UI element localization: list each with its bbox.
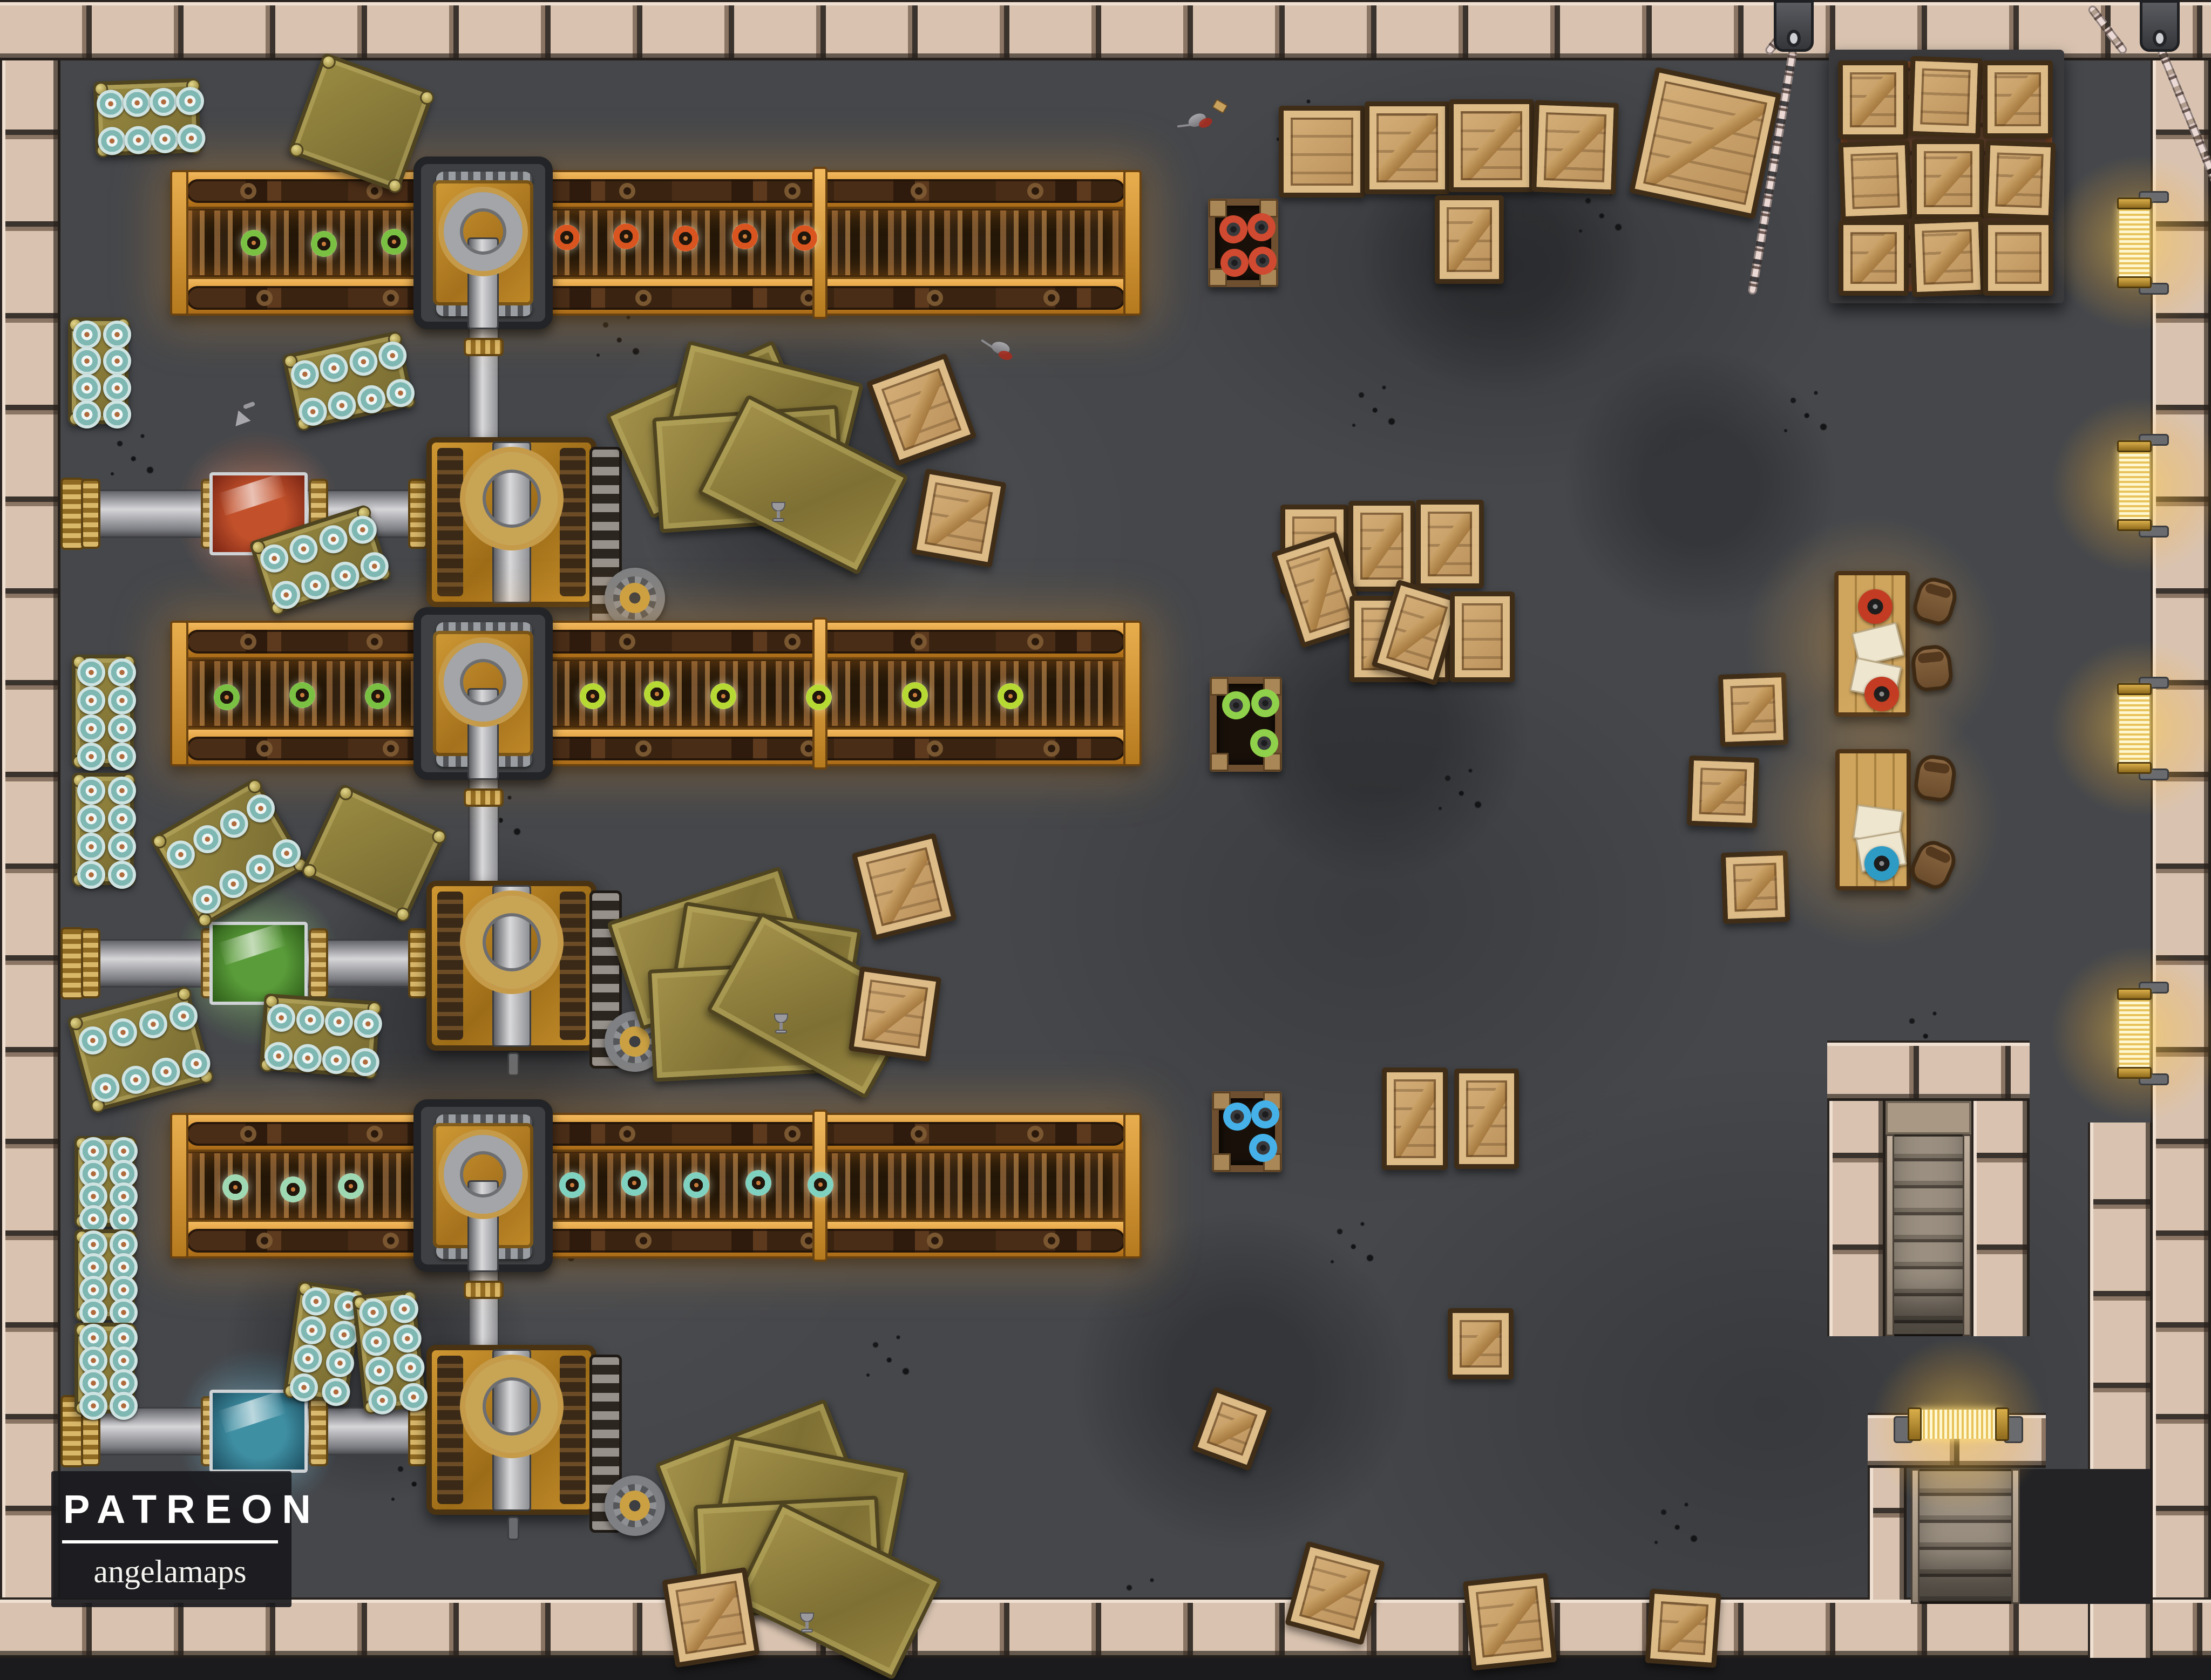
belt-potion-token[interactable] — [613, 223, 639, 249]
crate-potion-token[interactable] — [1251, 1100, 1279, 1128]
anchor-hole-icon — [1787, 30, 1801, 47]
belt-potion-token[interactable] — [214, 684, 240, 710]
belt-potion-token[interactable] — [683, 1172, 709, 1198]
stairs-landing — [1886, 1101, 1971, 1134]
tray-knob-icon — [336, 784, 355, 802]
tray-knob-icon — [418, 89, 436, 106]
conveyor-end-cap — [1123, 1113, 1142, 1259]
stair-stringer-icon — [2011, 1469, 2020, 1604]
floor-speckle — [97, 421, 173, 496]
crate[interactable] — [1448, 1308, 1514, 1379]
crate[interactable] — [1449, 99, 1534, 192]
potion-bottle-token[interactable] — [73, 400, 101, 428]
lamp-cap-icon — [2117, 519, 2152, 531]
potion-bottle-token[interactable] — [103, 400, 131, 428]
gear-icon — [1043, 290, 1060, 306]
goblet-cup-icon — [771, 502, 785, 512]
chair-back-icon — [1924, 582, 1952, 599]
open-potion-crate[interactable] — [1212, 1091, 1282, 1172]
potion-bottle-token[interactable] — [136, 1007, 171, 1042]
belt-potion-token[interactable] — [710, 683, 736, 709]
belt-potion-token[interactable] — [791, 225, 817, 251]
belt-potion-token[interactable] — [222, 1174, 248, 1200]
lamp-cap-icon — [2117, 276, 2152, 288]
platform-crate[interactable] — [1983, 220, 2053, 296]
belt-potion-token[interactable] — [289, 682, 315, 708]
machine-ring — [444, 1135, 523, 1214]
potion-bottle-token[interactable] — [315, 521, 351, 557]
belt-potion-token[interactable] — [241, 230, 267, 256]
pipe-glass-section — [209, 1390, 308, 1473]
potion-bottle-token[interactable] — [73, 347, 101, 375]
potion-bottle-token[interactable] — [327, 558, 363, 594]
potion-tray[interactable] — [93, 78, 201, 157]
potion-bottle-token[interactable] — [376, 339, 410, 372]
platform-crate[interactable] — [1912, 139, 1984, 219]
potion-tray[interactable] — [282, 330, 415, 430]
room-void — [2020, 1469, 2151, 1604]
belt-potion-token[interactable] — [580, 683, 606, 709]
potion-bottle-token[interactable] — [325, 389, 359, 422]
chair[interactable] — [1912, 753, 1958, 803]
potion-bottle-token[interactable] — [73, 374, 101, 402]
goblet-cup-icon — [800, 1613, 814, 1622]
pipe-collar — [464, 338, 504, 356]
chain-anchor-icon — [1774, 0, 1814, 52]
crate-potion-token[interactable] — [1223, 1103, 1251, 1131]
potion-bottle-token[interactable] — [108, 658, 136, 686]
floor-speckle — [1771, 378, 1846, 453]
gear-icon — [911, 634, 927, 650]
platform-crate[interactable] — [1910, 217, 1986, 297]
goblet-cup-icon — [774, 1014, 788, 1023]
crate-brace-icon — [1210, 753, 1229, 771]
wall-bottom — [0, 1597, 2211, 1658]
open-potion-crate[interactable] — [1208, 199, 1278, 287]
belt-potion-token[interactable] — [621, 1170, 647, 1196]
gear-icon — [383, 740, 399, 757]
conveyor-end-cap — [1123, 621, 1142, 766]
conveyor-mech-strip — [186, 630, 1125, 654]
belt-potion-token[interactable] — [365, 683, 391, 709]
pump-hook-icon — [507, 1516, 519, 1540]
conveyor-mech-strip — [186, 286, 1125, 310]
gear-icon — [367, 634, 383, 650]
broken-flask-icon — [229, 399, 263, 429]
crate[interactable] — [1718, 672, 1789, 747]
rat-tail-icon — [981, 339, 994, 349]
gear-icon — [635, 290, 652, 306]
wall-lamp — [2119, 447, 2149, 525]
chair[interactable] — [1906, 836, 1961, 894]
battlemap-stage: PATREONangelamaps — [0, 0, 2211, 1658]
conveyor-rail-top — [170, 1113, 1142, 1152]
gear-icon — [784, 183, 801, 199]
crate-potion-token[interactable] — [1250, 729, 1278, 757]
potion-bottle-token[interactable] — [108, 715, 136, 743]
gear-icon — [619, 634, 635, 650]
pump-gear-hub-icon — [620, 1026, 650, 1057]
open-potion-crate[interactable] — [1210, 677, 1282, 772]
crate[interactable] — [1365, 101, 1450, 194]
pump-rail-right — [560, 892, 586, 1040]
flask-shard — [230, 407, 250, 426]
platform-crate[interactable] — [1838, 60, 1908, 139]
belt-potion-token[interactable] — [745, 1170, 771, 1196]
belt-potion-token[interactable] — [554, 225, 580, 250]
floor-speckle — [1317, 1209, 1393, 1284]
belt-potion-token[interactable] — [902, 682, 928, 708]
potion-bottle-token[interactable] — [355, 383, 388, 416]
crate-potion-token[interactable] — [1249, 1134, 1277, 1162]
gear-icon — [383, 290, 399, 306]
lamp-cap-icon — [2117, 683, 2152, 695]
lamp-cap-icon — [1908, 1407, 1922, 1441]
tray-knob-icon — [288, 141, 306, 159]
wall-lamp — [2119, 995, 2149, 1072]
chain-anchor-icon — [2140, 0, 2180, 52]
potion-bottle-token[interactable] — [77, 743, 105, 771]
crate[interactable] — [1531, 100, 1619, 194]
potion-bottle-token[interactable] — [118, 1063, 153, 1097]
lamp-cap-icon — [2117, 198, 2152, 209]
potion-bottle-token[interactable] — [77, 777, 105, 805]
potion-bottle-token[interactable] — [317, 351, 351, 385]
glass-highlight-icon — [218, 923, 286, 965]
tray-knob-icon — [150, 832, 169, 851]
potion-bottle-token[interactable] — [295, 1004, 325, 1035]
pipe-collar — [464, 788, 504, 807]
conveyor-mech-strip — [186, 737, 1125, 760]
gear-icon — [911, 1126, 927, 1142]
rat-token[interactable] — [1178, 104, 1219, 138]
potion-bottle-token[interactable] — [322, 1045, 352, 1075]
conveyor-rail-top — [170, 621, 1142, 659]
potion-bottle-token[interactable] — [123, 88, 152, 117]
conveyor-end-cap — [170, 170, 188, 316]
gear-icon — [619, 183, 635, 199]
goblet-icon[interactable] — [772, 1014, 790, 1037]
goblet-base-icon — [801, 1629, 813, 1633]
potion-bottle-token[interactable] — [77, 715, 105, 743]
rat-token[interactable] — [981, 335, 1020, 364]
potion-tray[interactable] — [74, 1229, 135, 1320]
potion-bottle-token[interactable] — [77, 805, 105, 833]
pipe-collar — [81, 928, 100, 998]
floor-speckle — [1339, 372, 1414, 448]
potion-bottle-token[interactable] — [108, 777, 136, 805]
wall-lamp — [2119, 690, 2149, 767]
conveyor-rail-bottom — [170, 277, 1142, 316]
gear-icon — [1027, 1126, 1043, 1142]
belt-potion-token[interactable] — [280, 1176, 306, 1202]
conveyor-end-cap — [1123, 170, 1142, 316]
conveyor-end-cap — [170, 621, 188, 766]
potion-tray[interactable] — [72, 773, 134, 885]
pump-rail-left — [437, 892, 463, 1040]
gear-icon — [1027, 634, 1043, 650]
pump-rail-left — [437, 448, 463, 596]
potion-bottle-token[interactable] — [77, 861, 105, 889]
belt-potion-token[interactable] — [338, 1173, 364, 1199]
stairs-down[interactable] — [1911, 1469, 2020, 1604]
stairwell-wall-right — [1971, 1101, 2030, 1336]
belt-potion-token[interactable] — [644, 681, 670, 707]
gear-icon — [927, 1233, 943, 1249]
pump-rail-right — [560, 448, 586, 596]
crate[interactable] — [851, 833, 957, 941]
plate-token[interactable] — [1864, 677, 1899, 711]
belt-potion-token[interactable] — [732, 223, 758, 249]
stair-stringer-icon — [1911, 1469, 1920, 1604]
pump-hook-icon — [507, 1052, 519, 1076]
pump-gear-hub-icon — [620, 583, 650, 613]
watermark-divider — [62, 1540, 278, 1543]
potion-bottle-token[interactable] — [103, 374, 131, 402]
potion-bottle-token[interactable] — [286, 531, 322, 567]
anchor-hole-icon — [2153, 30, 2167, 47]
glass-highlight-icon — [218, 474, 286, 515]
belt-potion-token[interactable] — [806, 684, 832, 710]
potion-bottle-token[interactable] — [110, 1392, 138, 1420]
crate[interactable] — [911, 468, 1006, 568]
lamp-cap-icon — [2117, 1067, 2152, 1079]
goblet-base-icon — [775, 1030, 787, 1033]
gear-icon — [256, 290, 273, 306]
gear-icon — [240, 183, 256, 199]
potion-tray[interactable] — [74, 1323, 135, 1413]
gear-icon — [256, 1233, 273, 1249]
belt-potion-token[interactable] — [673, 226, 698, 251]
stair-stringer-icon — [1963, 1134, 1971, 1336]
potion-bottle-token[interactable] — [77, 658, 105, 686]
table[interactable] — [1834, 571, 1910, 717]
potion-bottle-token[interactable] — [175, 86, 205, 115]
potion-bottle-token[interactable] — [296, 1314, 328, 1346]
potion-bottle-token[interactable] — [293, 1043, 323, 1073]
crate[interactable] — [849, 966, 942, 1062]
lamp-cap-icon — [1995, 1407, 2009, 1441]
pipe-collar — [464, 1281, 504, 1299]
gear-icon — [911, 183, 927, 199]
chair-back-icon — [1923, 761, 1950, 774]
plate-token[interactable] — [1858, 589, 1893, 624]
machine-ring — [444, 643, 523, 722]
tray-knob-icon — [176, 985, 193, 1003]
stairwell-wall-top — [1827, 1040, 2030, 1101]
wall-left — [0, 60, 60, 1597]
glass-highlight-icon — [218, 1391, 286, 1433]
potion-bottle-token[interactable] — [347, 345, 380, 378]
crate[interactable] — [1279, 106, 1365, 198]
potion-bottle-token[interactable] — [98, 126, 127, 155]
crate[interactable] — [1629, 67, 1781, 219]
potion-bottle-token[interactable] — [108, 743, 136, 771]
platform-crate[interactable] — [1908, 56, 1983, 139]
crate[interactable] — [1416, 500, 1484, 588]
watermark-brand: PATREON — [63, 1486, 290, 1533]
potion-bottle-token[interactable] — [150, 124, 179, 153]
crate[interactable] — [1450, 591, 1515, 682]
potion-bottle-token[interactable] — [149, 87, 178, 117]
blood-icon — [998, 349, 1013, 361]
goblet-icon[interactable] — [769, 502, 788, 526]
floor-speckle — [1425, 756, 1501, 831]
potion-bottle-token[interactable] — [79, 1392, 107, 1420]
belt-potion-token[interactable] — [311, 231, 337, 257]
gear-icon — [1043, 740, 1060, 757]
crate[interactable] — [1454, 1069, 1519, 1169]
potion-bottle-token[interactable] — [166, 999, 201, 1033]
potion-bottle-token[interactable] — [103, 347, 131, 375]
pump-rail-right — [560, 1356, 586, 1504]
potion-bottle-token[interactable] — [364, 1356, 395, 1386]
potion-bottle-token[interactable] — [124, 125, 153, 154]
crate[interactable] — [1463, 1573, 1557, 1671]
chair-back-icon — [1917, 651, 1944, 663]
watermark-author: angelamaps — [51, 1553, 289, 1596]
pipe-glass-section — [209, 922, 308, 1005]
potion-tray[interactable] — [74, 1136, 135, 1227]
lamp-cap-icon — [2117, 440, 2152, 452]
platform-crate[interactable] — [1839, 220, 1909, 296]
floor-speckle — [853, 1322, 928, 1398]
crumb-icon — [1212, 99, 1228, 114]
gear-icon — [383, 1233, 399, 1249]
pump-arch-ring — [465, 1360, 558, 1453]
goblet-stem-icon — [805, 1622, 809, 1629]
belt-potion-token[interactable] — [381, 229, 407, 255]
conveyor-belt — [170, 1113, 1142, 1259]
pump-arch-ring — [465, 452, 558, 545]
wall-lamp — [1915, 1410, 2002, 1439]
potion-bottle-token[interactable] — [108, 833, 136, 861]
goblet-icon[interactable] — [798, 1613, 816, 1636]
potion-tray[interactable] — [352, 1290, 426, 1413]
potion-tray[interactable] — [68, 317, 128, 424]
crate[interactable] — [1382, 1067, 1448, 1170]
crate[interactable] — [662, 1567, 760, 1668]
room-wall-left — [1868, 1468, 1907, 1600]
goblet-stem-icon — [779, 1023, 783, 1030]
crate[interactable] — [1348, 501, 1415, 591]
gear-icon — [784, 634, 801, 650]
pipe-collar — [408, 479, 428, 549]
pump-gear-hub-icon — [620, 1491, 650, 1521]
crate[interactable] — [1645, 1589, 1721, 1668]
potion-tray[interactable] — [66, 985, 213, 1113]
potion-bottle-token[interactable] — [392, 1323, 423, 1354]
potion-bottle-token[interactable] — [108, 861, 136, 889]
gear-icon — [635, 740, 652, 757]
table[interactable] — [1835, 749, 1911, 890]
potion-bottle-token[interactable] — [108, 805, 136, 833]
chair[interactable] — [1910, 643, 1954, 692]
belt-potion-token[interactable] — [559, 1172, 585, 1198]
conveyor-rail-bottom — [170, 1220, 1142, 1259]
gear-icon — [784, 1126, 801, 1142]
plate-token[interactable] — [1864, 846, 1899, 881]
pipe-collar — [309, 1396, 328, 1466]
crate[interactable] — [1721, 851, 1790, 924]
belt-potion-token[interactable] — [998, 683, 1023, 709]
goblet-base-icon — [772, 518, 784, 522]
gear-icon — [619, 1126, 635, 1142]
potion-bottle-token[interactable] — [177, 124, 206, 153]
gear-icon — [1027, 183, 1043, 199]
crate-potion-token[interactable] — [1251, 689, 1279, 717]
belt-potion-token[interactable] — [808, 1172, 833, 1198]
conveyor-track — [186, 1152, 1125, 1220]
crate-potion-token[interactable] — [1249, 247, 1277, 275]
potion-bottle-token[interactable] — [298, 567, 334, 603]
potion-bottle-token[interactable] — [324, 1006, 355, 1037]
stairs-down[interactable] — [1886, 1134, 1971, 1336]
goblet-stem-icon — [777, 511, 780, 519]
crate[interactable] — [1687, 756, 1759, 828]
pump-arch-ring — [465, 896, 558, 989]
pipe-collar — [408, 928, 428, 998]
gear-icon — [1043, 1233, 1060, 1249]
lamp-cap-icon — [2117, 988, 2152, 1000]
crate-potion-token[interactable] — [1222, 691, 1250, 719]
gear-icon — [240, 1126, 256, 1142]
conveyor-rail-top — [170, 170, 1142, 209]
platform-crate[interactable] — [1838, 140, 1912, 222]
chair-back-icon — [1924, 845, 1952, 864]
conveyor-mech-strip — [186, 1229, 1125, 1253]
potion-bottle-token[interactable] — [77, 833, 105, 861]
potion-bottle-token[interactable] — [361, 1327, 391, 1357]
crate-potion-token[interactable] — [1219, 215, 1247, 243]
potion-bottle-token[interactable] — [108, 686, 136, 715]
wall-lamp — [2119, 204, 2149, 282]
potion-bottle-token[interactable] — [149, 1055, 184, 1089]
platform-crate[interactable] — [1983, 140, 2056, 220]
crate-brace-icon — [1209, 199, 1227, 217]
crate-brace-icon — [1210, 677, 1229, 696]
crate-potion-token[interactable] — [1247, 213, 1276, 241]
conveyor-mech-strip — [186, 179, 1125, 203]
pipe-collar — [81, 479, 100, 549]
potion-bottle-token[interactable] — [292, 1343, 324, 1375]
stairwell-wall-left — [1827, 1101, 1886, 1336]
gear-icon — [635, 1233, 652, 1249]
potion-bottle-token[interactable] — [103, 321, 131, 349]
potion-bottle-token[interactable] — [97, 89, 126, 118]
potion-bottle-token[interactable] — [106, 1015, 140, 1050]
potion-bottle-token[interactable] — [77, 686, 105, 715]
crate-brace-icon — [1212, 1153, 1231, 1172]
gear-icon — [927, 740, 943, 757]
rat-tail-icon — [1177, 124, 1191, 127]
potion-tray[interactable] — [72, 655, 134, 767]
flask-neck — [243, 402, 255, 410]
crate[interactable] — [1435, 195, 1504, 284]
potion-tray[interactable] — [149, 777, 307, 928]
crate-potion-token[interactable] — [1220, 249, 1249, 277]
potion-bottle-token[interactable] — [73, 321, 101, 349]
platform-crate[interactable] — [1983, 60, 2053, 138]
potion-tray[interactable] — [259, 994, 380, 1078]
watermark-badge: PATREONangelamaps — [51, 1471, 291, 1607]
conveyor-end-cap — [170, 1113, 188, 1259]
potion-bottle-token[interactable] — [395, 1352, 426, 1383]
chair[interactable] — [1910, 574, 1961, 628]
gear-icon — [240, 634, 256, 650]
conveyor-rail-bottom — [170, 727, 1142, 766]
floor-speckle — [1641, 1489, 1717, 1565]
